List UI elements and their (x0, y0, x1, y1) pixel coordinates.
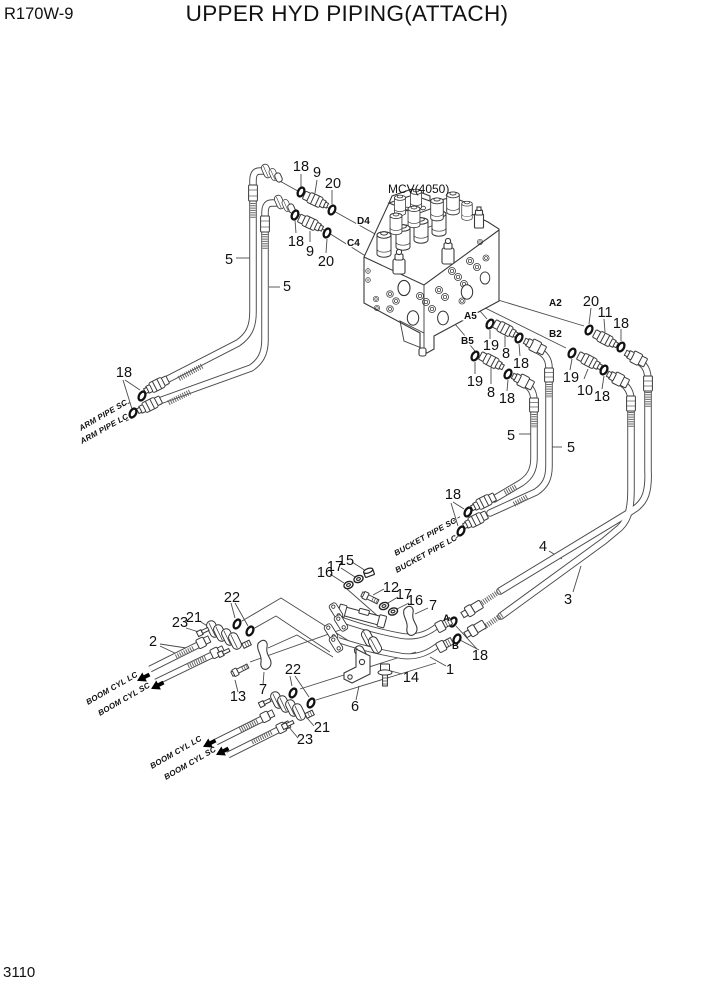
svg-text:UPPER HYD PIPING(ATTACH): UPPER HYD PIPING(ATTACH) (186, 1, 509, 26)
svg-text:23: 23 (297, 732, 313, 748)
svg-text:19: 19 (483, 338, 499, 354)
svg-text:5: 5 (567, 440, 575, 456)
svg-text:18: 18 (293, 159, 309, 175)
svg-text:2: 2 (149, 634, 157, 650)
svg-text:18: 18 (445, 487, 461, 503)
svg-text:7: 7 (259, 682, 267, 698)
svg-text:18: 18 (594, 389, 610, 405)
svg-text:14: 14 (403, 670, 419, 686)
svg-text:B2: B2 (549, 329, 562, 340)
svg-text:A2: A2 (549, 298, 562, 309)
svg-text:16: 16 (407, 593, 423, 609)
svg-text:B: B (452, 641, 459, 652)
svg-text:1: 1 (446, 662, 454, 678)
svg-text:8: 8 (487, 385, 495, 401)
svg-text:6: 6 (351, 699, 359, 715)
svg-text:11: 11 (597, 305, 612, 321)
svg-text:3110: 3110 (3, 964, 35, 981)
svg-text:10: 10 (577, 383, 593, 399)
svg-text:5: 5 (225, 252, 233, 268)
svg-text:22: 22 (285, 662, 301, 678)
svg-text:21: 21 (186, 610, 202, 626)
svg-text:B5: B5 (461, 336, 474, 347)
svg-text:R170W-9: R170W-9 (4, 5, 73, 23)
svg-text:18: 18 (472, 648, 488, 664)
svg-text:D4: D4 (357, 216, 370, 227)
svg-text:18: 18 (499, 391, 515, 407)
svg-text:20: 20 (325, 176, 341, 192)
svg-text:5: 5 (283, 279, 291, 295)
svg-text:3: 3 (564, 592, 572, 608)
svg-text:18: 18 (288, 234, 304, 250)
svg-text:21: 21 (314, 720, 330, 736)
svg-text:9: 9 (313, 165, 321, 181)
svg-text:7: 7 (429, 598, 437, 614)
svg-text:4: 4 (539, 539, 547, 555)
svg-text:C4: C4 (347, 238, 360, 249)
svg-text:18: 18 (116, 365, 132, 381)
svg-text:A: A (443, 613, 450, 624)
svg-text:22: 22 (224, 590, 240, 606)
svg-text:5: 5 (507, 428, 515, 444)
svg-text:8: 8 (502, 346, 510, 362)
svg-text:9: 9 (306, 244, 314, 260)
svg-text:18: 18 (613, 316, 629, 332)
svg-text:MCV(4050): MCV(4050) (388, 182, 449, 196)
svg-text:13: 13 (230, 689, 246, 705)
svg-text:20: 20 (318, 254, 334, 270)
svg-text:19: 19 (467, 374, 483, 390)
svg-text:16: 16 (317, 565, 333, 581)
svg-text:18: 18 (513, 356, 529, 372)
svg-text:A5: A5 (464, 311, 477, 322)
